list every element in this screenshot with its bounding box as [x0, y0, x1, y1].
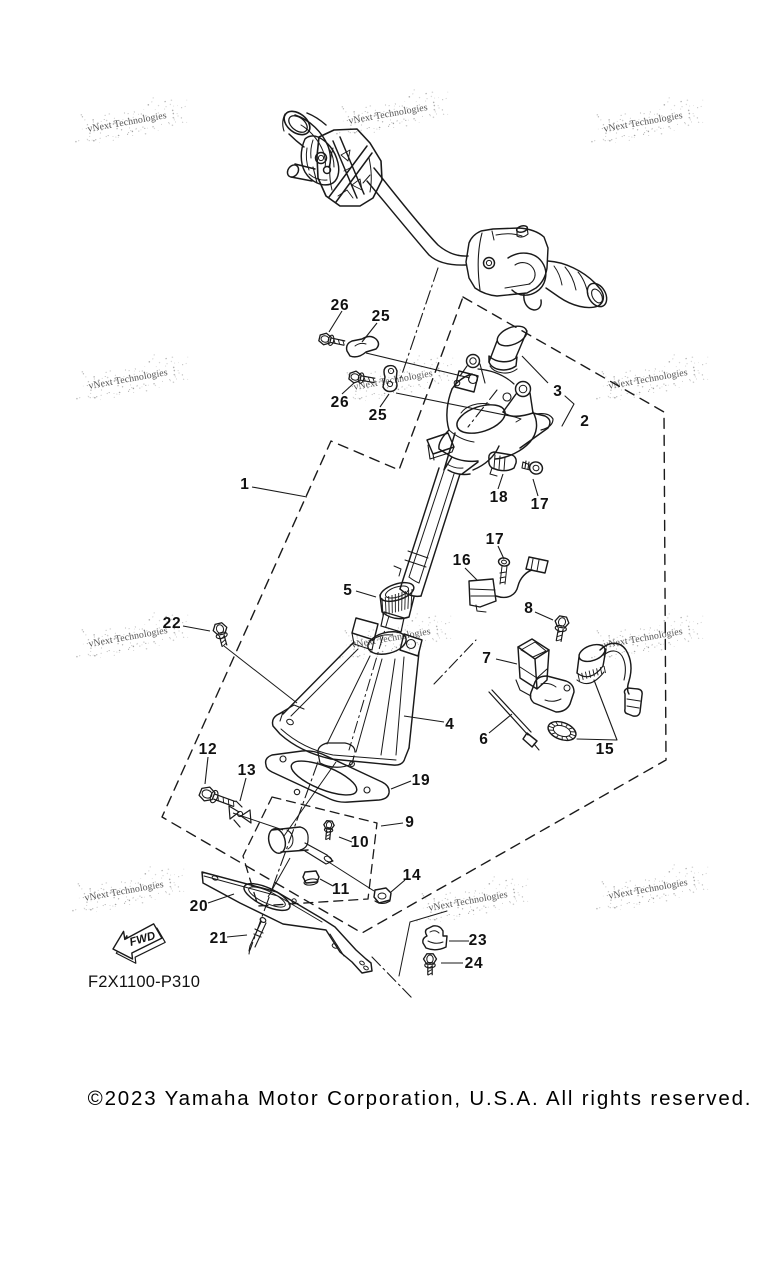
- svg-text:13: 13: [238, 762, 257, 779]
- svg-text:10: 10: [351, 834, 370, 851]
- svg-text:F2X1100-P310: F2X1100-P310: [88, 973, 200, 991]
- svg-text:3: 3: [553, 383, 562, 400]
- svg-text:4: 4: [445, 716, 454, 733]
- svg-text:11: 11: [332, 881, 350, 898]
- svg-text:25: 25: [372, 308, 391, 325]
- svg-text:17: 17: [486, 531, 505, 548]
- svg-text:9: 9: [405, 814, 414, 831]
- svg-text:23: 23: [469, 932, 488, 949]
- svg-text:8: 8: [524, 600, 533, 617]
- svg-text:14: 14: [403, 867, 422, 884]
- svg-text:21: 21: [210, 930, 229, 947]
- svg-text:1: 1: [240, 476, 249, 493]
- svg-text:18: 18: [490, 489, 509, 506]
- svg-text:7: 7: [482, 650, 491, 667]
- svg-text:19: 19: [412, 772, 431, 789]
- svg-text:26: 26: [331, 394, 350, 411]
- svg-text:22: 22: [163, 615, 182, 632]
- svg-text:5: 5: [343, 582, 352, 599]
- svg-text:15: 15: [596, 741, 615, 758]
- svg-text:25: 25: [369, 407, 388, 424]
- svg-text:12: 12: [199, 741, 218, 758]
- svg-text:6: 6: [479, 731, 488, 748]
- svg-text:20: 20: [190, 898, 209, 915]
- svg-text:©2023 Yamaha Motor Corporation: ©2023 Yamaha Motor Corporation, U.S.A. A…: [88, 1087, 753, 1110]
- svg-text:26: 26: [331, 297, 350, 314]
- svg-text:16: 16: [453, 552, 472, 569]
- svg-text:2: 2: [580, 413, 589, 430]
- svg-text:24: 24: [465, 955, 484, 972]
- svg-text:17: 17: [531, 496, 550, 513]
